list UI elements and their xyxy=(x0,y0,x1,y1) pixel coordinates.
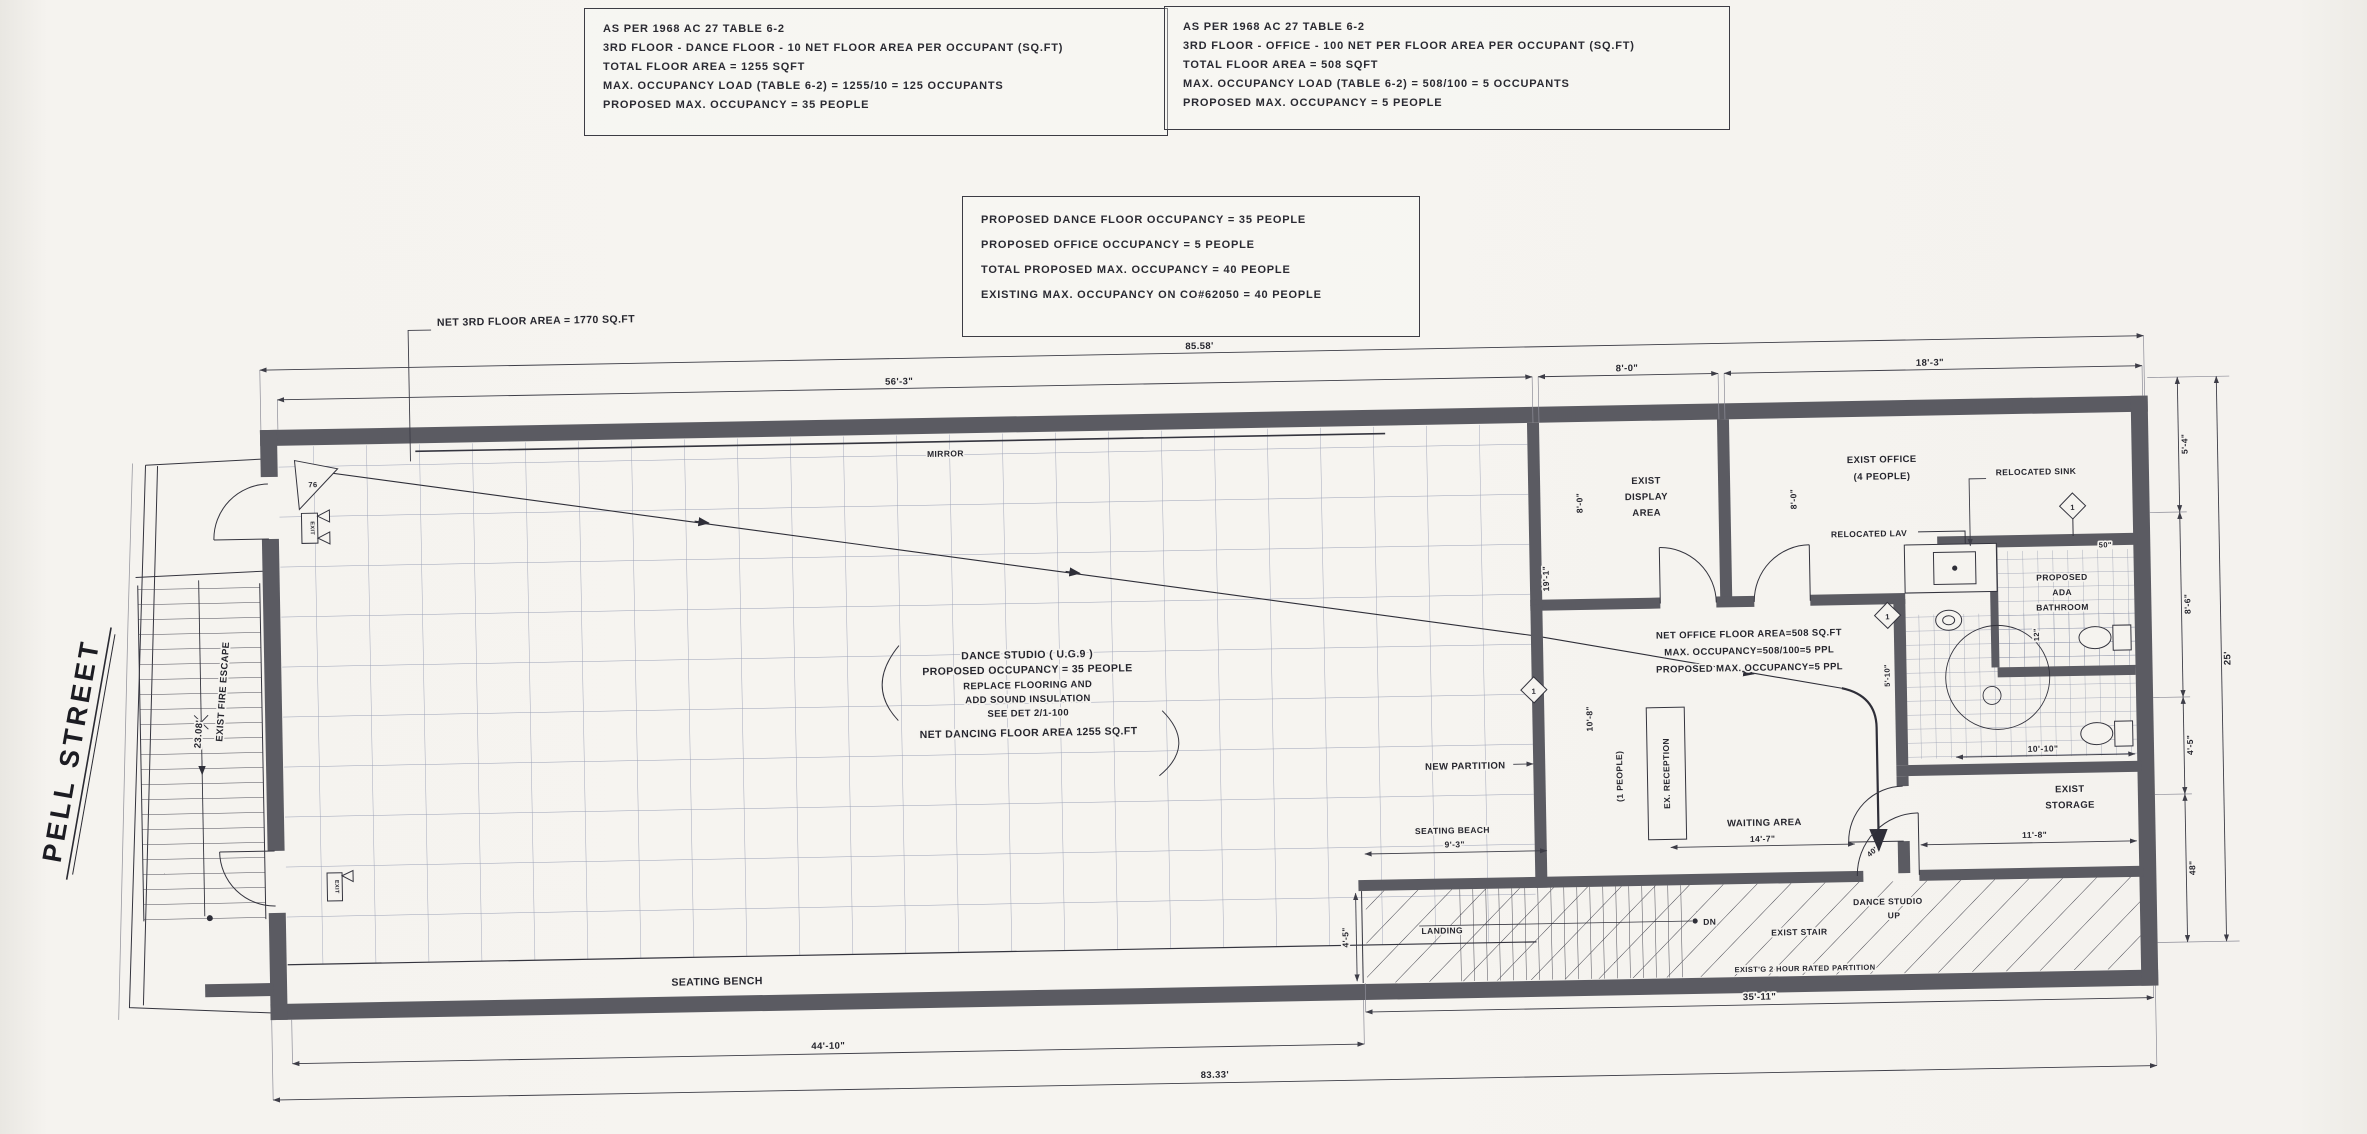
keynote-1: 1 xyxy=(1532,687,1537,696)
stair-tread-lines xyxy=(1451,885,1691,981)
toilet-2 xyxy=(2081,722,2113,745)
floor-plan-drawing: PELL STREET EXIST FIRE ESCAPE 23 xyxy=(0,0,2367,1134)
relocated-sink-label: RELOCATED SINK xyxy=(1996,466,2077,477)
seating-bench-label: SEATING BENCH xyxy=(671,975,763,989)
dim-beach-width: 9'-3" xyxy=(1444,839,1465,849)
dn-label: DN xyxy=(1703,917,1716,927)
svg-text:EXIST: EXIST xyxy=(2055,784,2085,796)
dim-landing-side: 4'-5" xyxy=(1340,927,1350,948)
exist-display-area-label: EXIST DISPLAY AREA xyxy=(1624,475,1668,519)
dim-stair-bottom: 35'-11" xyxy=(1743,991,1777,1003)
new-partition-label: NEW PARTITION xyxy=(1425,760,1506,772)
svg-text:BATHROOM: BATHROOM xyxy=(2036,602,2089,613)
dim-right-3: 4'-5" xyxy=(2185,735,2195,756)
office-calc-note: NET OFFICE FLOOR AREA=508 SQ.FT MAX. OCC… xyxy=(1655,627,1843,675)
svg-text:DISPLAY: DISPLAY xyxy=(1625,491,1669,503)
scanned-floor-plan-sheet: AS PER 1968 AC 27 TABLE 6-2 3RD FLOOR - … xyxy=(0,0,2367,1134)
mirror-label: MIRROR xyxy=(927,448,964,459)
keynote-76: 76 xyxy=(308,480,317,489)
waiting-area-label: WAITING AREA xyxy=(1727,817,1802,829)
dim-overall-bottom: 83.33' xyxy=(1201,1070,1230,1082)
dim-storage-width: 11'-8" xyxy=(2022,830,2047,840)
svg-text:EXIST OFFICE: EXIST OFFICE xyxy=(1847,454,1917,466)
seating-beach-label: SEATING BEACH xyxy=(1415,825,1490,836)
dim-right-1: 5'-4" xyxy=(2179,434,2189,455)
dim-waiting-width: 14'-7" xyxy=(1750,833,1776,843)
exist-office-label: EXIST OFFICE (4 PEOPLE) xyxy=(1847,454,1917,483)
dance-floor-grid xyxy=(278,424,1536,965)
dim-bottom-left: 44'-10" xyxy=(811,1041,845,1053)
studio-note-line: ADD SOUND INSULATION xyxy=(965,693,1091,706)
dim-studio-top: 56'-3" xyxy=(885,376,913,388)
svg-text:EXIST: EXIST xyxy=(1631,476,1661,488)
exit-sign-text: EXIT xyxy=(309,521,315,535)
svg-text:AREA: AREA xyxy=(1632,508,1661,520)
fire-escape: EXIST FIRE ESCAPE 23.08' xyxy=(108,459,273,1020)
right-dimensions: 5'-4" 8'-6" 4'-5" 48" 25' xyxy=(2147,376,2239,942)
dim-partition-h: 10'-8" xyxy=(1584,706,1594,732)
street-label-group: PELL STREET xyxy=(34,622,116,881)
dim-bath-side: 5'-10" xyxy=(1882,664,1891,687)
fire-escape-length-dim: 23.08' xyxy=(193,720,206,749)
plan-tilt-group: EXIST FIRE ESCAPE 23.08' xyxy=(106,284,2242,1103)
exist-storage-label: EXIST STORAGE xyxy=(2045,784,2095,812)
keynote-1: 1 xyxy=(1885,612,1890,621)
exit-sign-text: EXIT xyxy=(333,880,339,894)
dim-display-top: 8'-0" xyxy=(1616,363,1639,374)
office-note-line: MAX. OCCUPANCY=508/100=5 PPL xyxy=(1664,644,1834,658)
ex-reception-label: EX. RECEPTION xyxy=(1661,738,1672,809)
office-note-line: NET OFFICE FLOOR AREA=508 SQ.FT xyxy=(1656,627,1842,641)
dim-overall-right: 25' xyxy=(2222,651,2233,665)
exist-stair-label: EXIST STAIR xyxy=(1771,927,1827,938)
svg-text:PROPOSED: PROPOSED xyxy=(2036,572,2088,583)
dim-bath-width: 10'-10" xyxy=(2028,743,2059,754)
dim-twelve: 12" xyxy=(2032,628,2041,641)
relocated-lav-label: RELOCATED LAV xyxy=(1831,528,1907,539)
landing-label: LANDING xyxy=(1421,925,1463,936)
dim-fifty: 50" xyxy=(2099,540,2112,549)
dim-right-4: 48" xyxy=(2187,860,2197,875)
dim-display-depth: 8'-0" xyxy=(1574,493,1584,514)
dim-studio-side: 19'-1" xyxy=(1541,566,1551,592)
studio-note-line: SEE DET 2/1-100 xyxy=(987,707,1069,719)
dim-office-top: 18'-3" xyxy=(1916,357,1944,369)
dim-right-2: 8'-6" xyxy=(2182,594,2192,615)
display-office-wall xyxy=(1717,419,1732,600)
studio-note-line: DANCE STUDIO ( U.G.9 ) xyxy=(961,648,1093,662)
storage-wall xyxy=(1896,761,2141,776)
svg-text:(4 PEOPLE): (4 PEOPLE) xyxy=(1854,471,1911,483)
svg-text:ADA: ADA xyxy=(2052,587,2072,597)
svg-text:STORAGE: STORAGE xyxy=(2045,800,2095,812)
up-label: UP xyxy=(1888,910,1901,920)
toilet-1 xyxy=(2079,626,2111,649)
dim-office-depth: 8'-0" xyxy=(1788,489,1798,510)
net-floor-area-label: NET 3RD FLOOR AREA = 1770 SQ.FT xyxy=(437,313,635,329)
dim-overall-top: 85.58' xyxy=(1185,341,1214,353)
forty-label: 40' xyxy=(1865,845,1879,859)
street-name: PELL STREET xyxy=(37,636,106,864)
dance-studio-up-label: DANCE STUDIO xyxy=(1853,896,1923,907)
one-people-label: (1 PEOPLE) xyxy=(1614,751,1625,802)
office-note-line: PROPOSED MAX. OCCUPANCY=5 PPL xyxy=(1656,661,1843,675)
keynote-1: 1 xyxy=(2070,503,2075,512)
